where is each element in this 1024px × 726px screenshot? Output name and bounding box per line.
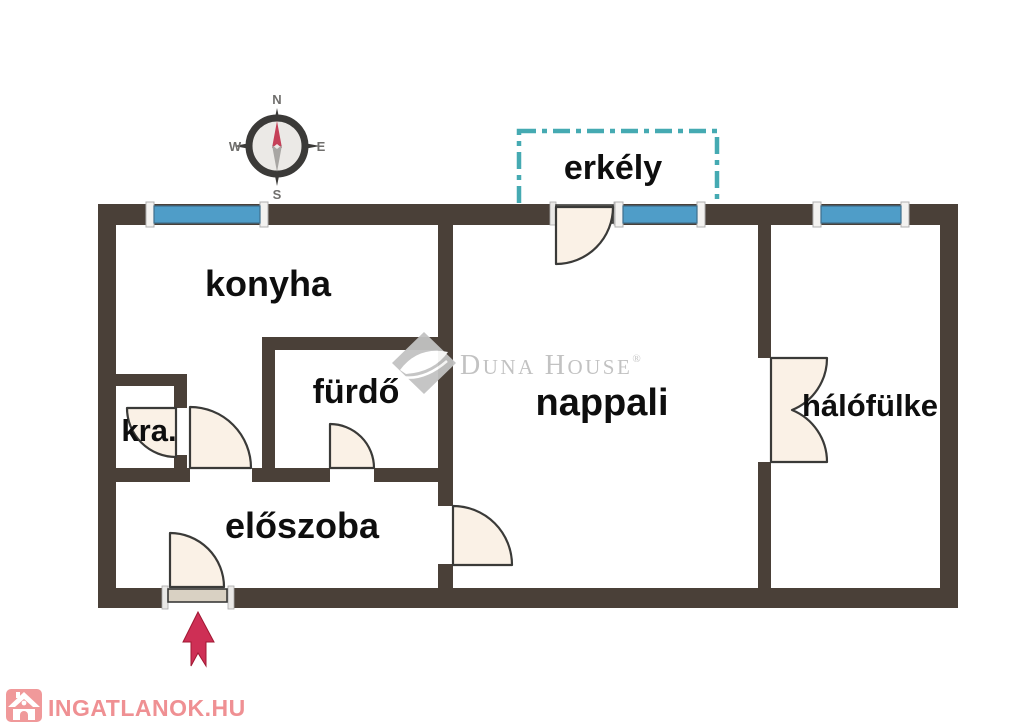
watermark-text: DUNAHOUSE®	[460, 350, 643, 381]
wm-h: H	[545, 350, 568, 381]
compass-label-s: S	[273, 187, 282, 202]
balcony-door-swing	[556, 207, 613, 264]
window-alcove	[821, 206, 901, 223]
hallway-label: előszoba	[225, 505, 380, 546]
wall-living-alcove-upper	[758, 225, 771, 358]
wm-d: D	[460, 350, 483, 381]
entrance-door-leaf	[168, 589, 227, 602]
wm-una: UNA	[483, 355, 536, 379]
compass-label-n: N	[272, 92, 281, 107]
alcove-label: hálófülke	[802, 388, 938, 423]
entrance-door-swing	[170, 533, 224, 587]
wall-kitchen-living-lower	[438, 564, 453, 590]
wall-living-alcove-lower	[758, 462, 771, 588]
compass-label-e: E	[317, 139, 326, 154]
wall-outer-right	[940, 204, 958, 608]
kitchen-door-swing	[190, 407, 251, 468]
floor-plan-page: N E S W	[0, 0, 1024, 726]
window-cap	[901, 202, 909, 227]
window-cap	[697, 202, 705, 227]
wm-reg: ®	[632, 353, 643, 365]
bathroom-door-swing	[330, 424, 374, 468]
window-cap	[260, 202, 268, 227]
window-living-room	[623, 206, 697, 223]
kitchen-label: konyha	[205, 263, 332, 304]
wall-hallway-top-seg3	[374, 468, 453, 482]
footer-logo-ingatlanok: INGATLANOK.HU	[6, 689, 246, 722]
living-room-door-swing	[453, 506, 512, 565]
wall-bathroom-left	[262, 337, 275, 482]
logo-door-icon	[20, 711, 28, 720]
logo-window-dot-icon	[22, 701, 27, 706]
logo-chimney-icon	[16, 692, 20, 698]
wall-pantry-right-upper	[174, 374, 187, 408]
wall-hallway-top-seg2	[252, 468, 330, 482]
window-cap	[615, 202, 623, 227]
wall-hallway-top-seg1	[116, 468, 190, 482]
compass-rose: N E S W	[229, 92, 326, 202]
entrance-arrow-icon	[183, 612, 214, 666]
balcony-label: erkély	[564, 149, 662, 187]
window-kitchen	[154, 206, 260, 223]
jamb-cap	[228, 586, 234, 609]
floor-plan-canvas: N E S W	[0, 0, 1024, 726]
living-room-label: nappali	[535, 382, 668, 424]
bathroom-label: fürdő	[313, 373, 400, 411]
window-cap	[146, 202, 154, 227]
footer-logo-text: INGATLANOK.HU	[48, 695, 246, 721]
wall-outer-left	[98, 204, 116, 608]
compass-label-w: W	[229, 139, 242, 154]
pantry-label: kra.	[121, 413, 176, 448]
jamb-cap	[162, 586, 168, 609]
window-cap	[813, 202, 821, 227]
wm-ouse: OUSE	[567, 355, 632, 379]
